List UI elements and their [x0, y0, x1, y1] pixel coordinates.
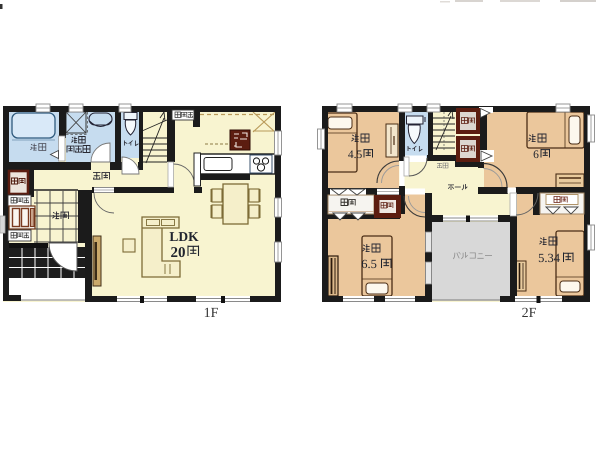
- svg-text:6: 6: [533, 149, 539, 161]
- svg-text:LDK: LDK: [169, 229, 199, 244]
- svg-text:4.5: 4.5: [348, 149, 363, 161]
- svg-text:2F: 2F: [522, 306, 537, 321]
- svg-text:5.34: 5.34: [538, 251, 561, 265]
- svg-text:6.5: 6.5: [361, 257, 377, 271]
- svg-text:1F: 1F: [204, 306, 219, 321]
- svg-text:20: 20: [171, 245, 186, 261]
